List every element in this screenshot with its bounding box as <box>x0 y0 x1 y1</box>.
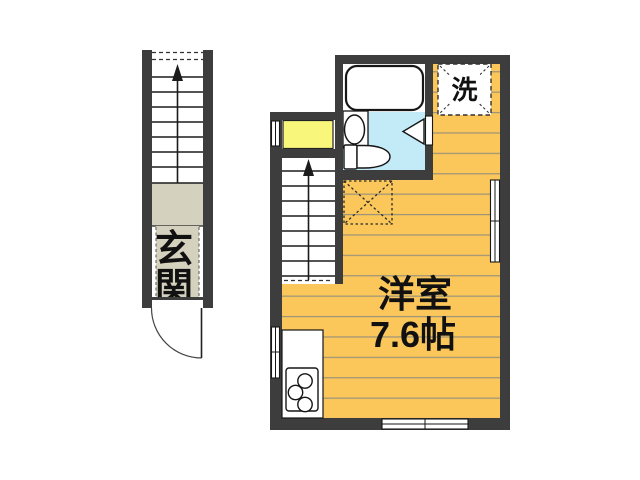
entrance-door <box>152 308 202 358</box>
staircase-2f <box>282 158 335 284</box>
toilet <box>344 145 390 169</box>
room-name-label: 洋室 <box>378 273 452 315</box>
entrance-block: 玄 関 <box>142 50 213 358</box>
stove-burner <box>288 385 302 399</box>
sink <box>343 111 368 148</box>
bathroom <box>343 64 425 170</box>
room-size-label: 7.6帖 <box>370 314 456 355</box>
window-right <box>491 180 500 262</box>
floor-plan: 玄 関 <box>0 0 640 480</box>
main-unit-block: 洗 <box>270 55 510 430</box>
bathtub <box>346 66 423 110</box>
entrance-label-char1: 玄 <box>155 229 193 271</box>
closet <box>283 121 333 149</box>
entrance-door-opening <box>152 300 203 308</box>
washer-space: 洗 <box>438 64 491 115</box>
genkan-landing <box>152 183 203 226</box>
washer-label: 洗 <box>451 75 477 105</box>
stove <box>286 368 318 412</box>
window-bottom <box>382 419 468 429</box>
window-left-kitchen <box>272 327 280 378</box>
stove-burner <box>298 397 312 411</box>
kitchen-counter <box>282 330 323 418</box>
window-left-upper <box>272 121 280 146</box>
floor-plan-svg: 玄 関 <box>0 0 640 480</box>
